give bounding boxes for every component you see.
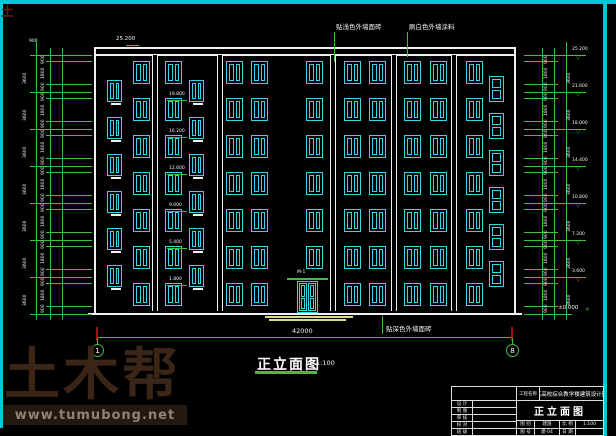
meta-value: 1:100 xyxy=(576,421,603,428)
drawing-scale: 1:100 xyxy=(316,360,335,367)
window xyxy=(226,283,243,306)
floor-height-dim: 3600 xyxy=(568,147,573,158)
window xyxy=(226,209,243,232)
dim-subtick-right xyxy=(524,306,558,307)
dim-chain-left-mid xyxy=(50,48,51,320)
floor-height-dim: 3600 xyxy=(24,258,29,269)
wall-pilaster xyxy=(217,55,223,311)
meta-label: 日 期 xyxy=(560,429,576,436)
leader-plinth xyxy=(382,316,383,334)
window xyxy=(466,135,483,158)
dim-subtick-left xyxy=(46,209,92,210)
dim-subtick-right xyxy=(524,84,558,85)
sub-dim: 900 xyxy=(545,193,550,202)
dim-chain-right-mid xyxy=(554,48,555,320)
title-block: 工程名称 某高校综合教学楼建筑设计图 设 计 制 图 审 核 校 对 班 级 正… xyxy=(451,386,604,436)
overall-dim-value: 42000 xyxy=(292,328,313,335)
window-sill xyxy=(111,140,121,142)
window-sill xyxy=(193,177,203,179)
dim-subtick-right xyxy=(524,172,558,173)
landing-window xyxy=(489,261,504,287)
window xyxy=(344,172,361,195)
sub-dim: 900 xyxy=(545,267,550,276)
dim-subtick-right xyxy=(524,269,558,270)
door-canopy-line xyxy=(287,278,328,280)
annotation-plinth: 贴深色外墙面砖 xyxy=(386,326,432,333)
floor-height-dim: 3600 xyxy=(568,73,573,84)
window xyxy=(133,283,150,306)
floor-height-dim: 3600 xyxy=(568,221,573,232)
sub-dim: 1800 xyxy=(545,290,550,301)
window xyxy=(251,209,268,232)
level-value: 18.000 xyxy=(572,122,588,127)
dim-subtick-right xyxy=(524,209,558,210)
window-sill xyxy=(111,288,121,290)
stair-window xyxy=(189,265,204,287)
stair-window xyxy=(107,265,122,287)
window-sill xyxy=(111,177,121,179)
signature-label: 班 级 xyxy=(452,429,473,435)
project-name-value: 某高校综合教学楼建筑设计图 xyxy=(540,387,603,400)
window xyxy=(466,209,483,232)
dim-subtick-left xyxy=(46,121,92,122)
dim-tick-left xyxy=(30,240,92,241)
window xyxy=(369,246,386,269)
sub-dim: 900 xyxy=(545,119,550,128)
dim-tick-left xyxy=(30,166,92,167)
level-value: 3.600 xyxy=(572,270,585,275)
sub-dim: 900 xyxy=(42,119,47,128)
window xyxy=(344,61,361,84)
window xyxy=(466,172,483,195)
window xyxy=(344,209,361,232)
stair-level-value: 9.000 xyxy=(169,204,182,209)
sub-dim: 900 xyxy=(42,92,47,101)
meta-label: 图 别 xyxy=(517,421,535,428)
stair-level-value: 16.200 xyxy=(169,130,185,135)
window xyxy=(165,209,182,232)
dim-subtick-right xyxy=(524,61,558,62)
signature-label: 设 计 xyxy=(452,401,473,407)
window-sill xyxy=(193,140,203,142)
landing-window xyxy=(489,224,504,250)
floor-height-dim: 3600 xyxy=(24,110,29,121)
stair-window xyxy=(189,191,204,213)
overall-dim-line xyxy=(97,337,513,338)
window xyxy=(430,209,447,232)
floor-height-dim: 3600 xyxy=(24,221,29,232)
window xyxy=(344,98,361,121)
sub-dim: 900 xyxy=(42,240,47,249)
window xyxy=(369,61,386,84)
level-symbol-icon: ▽ xyxy=(576,204,580,210)
ground-level-symbol-icon: ✳ xyxy=(585,308,590,314)
window xyxy=(251,98,268,121)
ground-level-value: ±0.000 xyxy=(558,306,578,312)
annotation-top-left: 贴浅色外墙面砖 xyxy=(336,24,382,31)
dim-subtick-left xyxy=(46,232,92,233)
building-wall-left xyxy=(94,47,96,313)
dim-tick-left xyxy=(30,277,92,278)
window xyxy=(430,98,447,121)
meta-label: 图 号 xyxy=(517,429,535,436)
floor-height-dim: 3600 xyxy=(24,295,29,306)
window xyxy=(404,209,421,232)
title-block-meta-row-b: 图 号 建-04 日 期 xyxy=(517,429,603,436)
dim-subtick-left xyxy=(46,269,92,270)
title-block-project-row: 工程名称 某高校综合教学楼建筑设计图 xyxy=(452,387,603,401)
window xyxy=(430,283,447,306)
window xyxy=(466,98,483,121)
wall-pilaster xyxy=(451,55,457,311)
sub-dim: 1800 xyxy=(545,253,550,264)
title-block-signature-column: 设 计 制 图 审 核 校 对 班 级 xyxy=(452,401,517,435)
window xyxy=(226,172,243,195)
roof-level-symbol-icon: ▽ xyxy=(129,46,133,52)
window xyxy=(251,135,268,158)
level-symbol-icon: ▽ xyxy=(576,278,580,284)
dim-tick-left xyxy=(30,129,92,130)
dim-tick-left xyxy=(30,92,92,93)
window xyxy=(251,172,268,195)
dim-tick-left xyxy=(30,55,92,56)
sub-dim: 900 xyxy=(545,55,550,64)
dim-subtick-left xyxy=(46,246,92,247)
sub-dim: 1800 xyxy=(545,142,550,153)
door-label: M-1 xyxy=(297,271,305,276)
sub-dim: 900 xyxy=(545,82,550,91)
window xyxy=(404,61,421,84)
stair-level-line xyxy=(167,100,187,101)
level-symbol-icon: ▽ xyxy=(576,241,580,247)
sub-dim: 900 xyxy=(42,166,47,175)
window xyxy=(466,283,483,306)
window xyxy=(226,135,243,158)
dim-subtick-left xyxy=(46,172,92,173)
level-value: 10.800 xyxy=(572,196,588,201)
cad-drawing-canvas: 19.80016.20012.6009.0005.4001.8009003600… xyxy=(0,0,616,436)
window xyxy=(133,209,150,232)
sub-dim: 1800 xyxy=(42,253,47,264)
dim-subtick-right xyxy=(524,232,558,233)
window xyxy=(344,283,361,306)
window xyxy=(133,246,150,269)
signature-value xyxy=(473,401,516,407)
dim-subtick-left xyxy=(46,135,92,136)
sub-dim: 900 xyxy=(42,277,47,286)
level-value: 25.200 xyxy=(572,48,588,53)
stair-window xyxy=(107,80,122,102)
dim-subtick-left xyxy=(46,158,92,159)
sub-dim: 900 xyxy=(545,277,550,286)
window xyxy=(404,135,421,158)
floor-height-dim: 3600 xyxy=(568,184,573,195)
sub-dim: 1800 xyxy=(545,179,550,190)
floor-height-dim: 3600 xyxy=(24,184,29,195)
stair-level-value: 1.800 xyxy=(169,278,182,283)
window xyxy=(165,61,182,84)
window xyxy=(404,246,421,269)
stair-window xyxy=(189,228,204,250)
landing-window xyxy=(489,150,504,176)
sub-dim: 1800 xyxy=(42,142,47,153)
stair-level-line xyxy=(167,137,187,138)
stair-window xyxy=(107,117,122,139)
meta-value: 建-04 xyxy=(535,429,560,436)
floor-height-dim: 3600 xyxy=(568,258,573,269)
floor-height-dim: 3600 xyxy=(24,73,29,84)
sub-dim: 1800 xyxy=(545,105,550,116)
window xyxy=(226,98,243,121)
window xyxy=(369,283,386,306)
dim-subtick-right xyxy=(524,121,558,122)
dim-subtick-right xyxy=(524,283,558,284)
stair-window xyxy=(107,228,122,250)
dim-subtick-right xyxy=(524,158,558,159)
title-block-meta-row-a: 图 别 建施 比 例 1:100 xyxy=(517,421,603,429)
window xyxy=(466,246,483,269)
landing-window xyxy=(489,187,504,213)
watermark-url: www.tumubong.net xyxy=(3,405,187,425)
stair-window xyxy=(189,117,204,139)
window xyxy=(369,135,386,158)
stair-window xyxy=(107,154,122,176)
window xyxy=(369,98,386,121)
axis-bubble-8: 8 xyxy=(506,344,519,357)
dim-subtick-left xyxy=(46,98,92,99)
level-symbol-icon: ▽ xyxy=(576,130,580,136)
window xyxy=(251,283,268,306)
sub-dim: 1800 xyxy=(42,290,47,301)
sub-dim: 900 xyxy=(42,230,47,239)
sub-dim: 900 xyxy=(545,156,550,165)
leader-top-left xyxy=(334,32,335,62)
window xyxy=(430,135,447,158)
window xyxy=(226,61,243,84)
window xyxy=(251,246,268,269)
sub-dim: 1800 xyxy=(42,216,47,227)
window xyxy=(165,172,182,195)
watermark-corner-glyph: 土 xyxy=(1,1,14,20)
window xyxy=(133,98,150,121)
stair-window xyxy=(189,80,204,102)
dim-tick-right xyxy=(524,314,572,315)
dim-chain-right-inner xyxy=(542,48,543,320)
sub-dim: 900 xyxy=(545,230,550,239)
building-wall-right xyxy=(514,47,516,313)
level-symbol-icon: ▽ xyxy=(576,93,580,99)
window-sill xyxy=(111,251,121,253)
window xyxy=(133,172,150,195)
window xyxy=(306,98,323,121)
title-block-blank-cell xyxy=(452,387,517,400)
parapet-dim-value: 900 xyxy=(29,40,38,45)
dim-subtick-left xyxy=(46,84,92,85)
sub-dim: 900 xyxy=(545,92,550,101)
sub-dim: 900 xyxy=(545,129,550,138)
window xyxy=(404,98,421,121)
stair-level-line xyxy=(167,248,187,249)
dim-subtick-right xyxy=(524,195,558,196)
window-sill xyxy=(193,214,203,216)
signature-value xyxy=(473,415,516,421)
sub-dim: 900 xyxy=(545,240,550,249)
sub-dim: 1800 xyxy=(42,179,47,190)
stair-level-value: 5.400 xyxy=(169,241,182,246)
sub-dim: 1800 xyxy=(545,216,550,227)
roof-level-value: 25.200 xyxy=(116,37,135,43)
sub-dim: 1800 xyxy=(545,68,550,79)
dim-chain-left-inner xyxy=(62,48,63,320)
watermark-brand: 土木帮 xyxy=(4,348,181,404)
floor-height-dim: 3600 xyxy=(568,110,573,121)
sub-dim: 900 xyxy=(42,203,47,212)
dim-subtick-right xyxy=(524,98,558,99)
window-sill xyxy=(193,288,203,290)
sub-dim: 900 xyxy=(42,267,47,276)
window xyxy=(404,172,421,195)
dim-subtick-left xyxy=(46,195,92,196)
window-sill xyxy=(111,214,121,216)
window xyxy=(430,61,447,84)
sub-dim: 1800 xyxy=(42,105,47,116)
level-symbol-icon: ▽ xyxy=(576,56,580,62)
window xyxy=(404,283,421,306)
sub-dim: 900 xyxy=(42,304,47,313)
signature-label: 校 对 xyxy=(452,422,473,428)
stair-window xyxy=(107,191,122,213)
title-block-drawing-title: 正立面图 xyxy=(517,401,603,421)
floor-height-dim: 3600 xyxy=(24,147,29,158)
window xyxy=(306,135,323,158)
sub-dim: 900 xyxy=(545,166,550,175)
dim-subtick-right xyxy=(524,246,558,247)
sub-dim: 900 xyxy=(42,82,47,91)
window xyxy=(430,172,447,195)
window xyxy=(133,135,150,158)
leader-top-right xyxy=(407,32,408,57)
window xyxy=(306,61,323,84)
wall-pilaster xyxy=(391,55,397,311)
sub-dim: 900 xyxy=(42,193,47,202)
window xyxy=(369,209,386,232)
window xyxy=(251,61,268,84)
sub-dim: 900 xyxy=(545,304,550,313)
stair-level-value: 19.800 xyxy=(169,93,185,98)
dim-subtick-left xyxy=(46,61,92,62)
window-sill xyxy=(193,251,203,253)
sub-dim: 1800 xyxy=(42,68,47,79)
sub-dim: 900 xyxy=(42,156,47,165)
dim-tick-left xyxy=(30,203,92,204)
landing-window xyxy=(489,76,504,102)
meta-label: 比 例 xyxy=(560,421,576,428)
signature-value xyxy=(473,422,516,428)
window xyxy=(306,246,323,269)
stair-level-value: 12.600 xyxy=(169,167,185,172)
wall-pilaster xyxy=(330,55,336,311)
window xyxy=(466,61,483,84)
signature-value xyxy=(473,408,516,414)
dim-chain-left-outer xyxy=(36,42,37,320)
window xyxy=(133,61,150,84)
door-threshold xyxy=(269,319,346,321)
window xyxy=(344,135,361,158)
window-sill xyxy=(111,103,121,105)
window xyxy=(344,246,361,269)
sub-dim: 900 xyxy=(545,203,550,212)
annotation-top-right: 刷白色外墙涂料 xyxy=(409,24,455,31)
dim-tick-left xyxy=(30,314,92,315)
signature-value xyxy=(473,429,516,435)
level-value: 14.400 xyxy=(572,159,588,164)
dim-subtick-left xyxy=(46,283,92,284)
signature-label: 审 核 xyxy=(452,415,473,421)
window xyxy=(226,246,243,269)
stair-level-line xyxy=(167,211,187,212)
stair-level-line xyxy=(167,174,187,175)
dim-subtick-left xyxy=(46,306,92,307)
level-value: 7.200 xyxy=(572,233,585,238)
entrance-door xyxy=(297,281,318,313)
window xyxy=(430,246,447,269)
meta-value: 建施 xyxy=(535,421,560,428)
meta-value xyxy=(576,429,603,436)
window xyxy=(306,172,323,195)
signature-label: 制 图 xyxy=(452,408,473,414)
level-value: 21.600 xyxy=(572,85,588,90)
wall-pilaster xyxy=(152,55,158,311)
window-sill xyxy=(193,103,203,105)
project-name-label: 工程名称 xyxy=(517,387,540,400)
window xyxy=(165,135,182,158)
window xyxy=(165,246,182,269)
window xyxy=(165,283,182,306)
window xyxy=(306,209,323,232)
title-underline xyxy=(255,371,317,374)
window xyxy=(165,98,182,121)
stair-window xyxy=(189,154,204,176)
dim-subtick-right xyxy=(524,135,558,136)
window xyxy=(369,172,386,195)
level-symbol-icon: ▽ xyxy=(576,167,580,173)
sub-dim: 900 xyxy=(42,55,47,64)
sub-dim: 900 xyxy=(42,129,47,138)
stair-level-line xyxy=(167,285,187,286)
building-parapet-line xyxy=(94,47,516,49)
landing-window xyxy=(489,113,504,139)
